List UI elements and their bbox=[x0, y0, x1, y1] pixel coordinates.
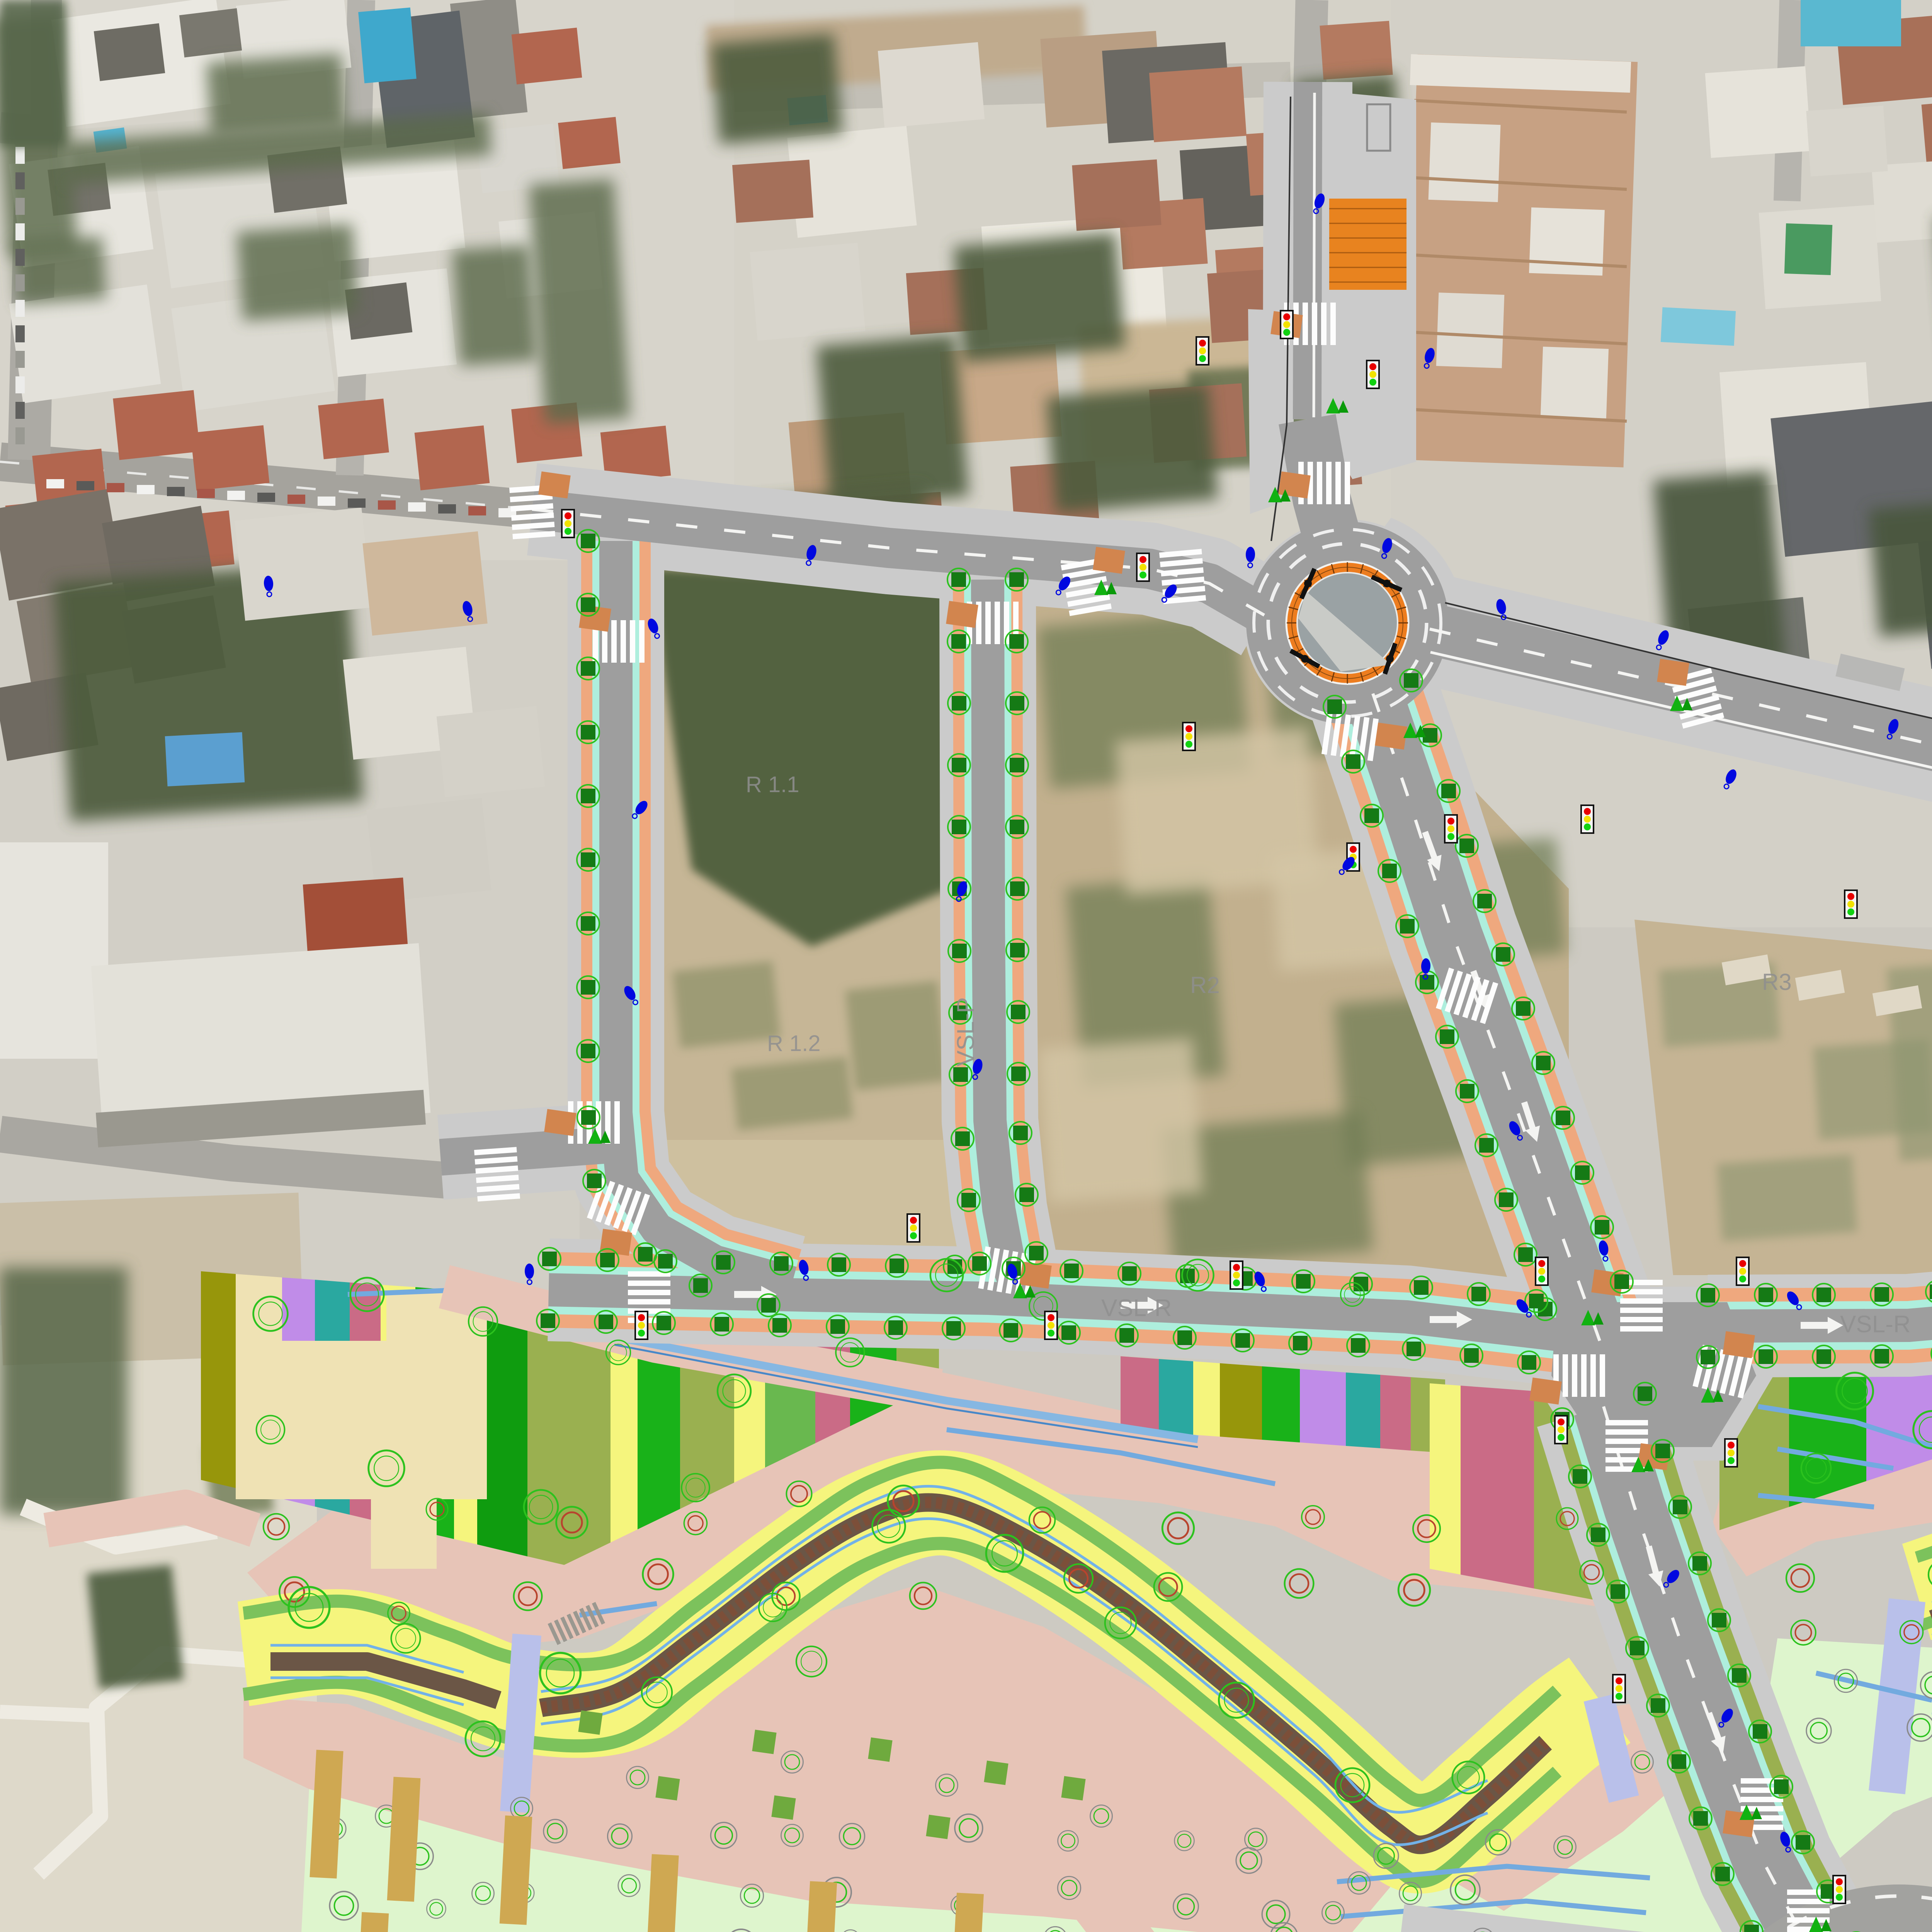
svg-text:R 1.1: R 1.1 bbox=[746, 772, 799, 797]
svg-text:VSL-R: VSL-R bbox=[1840, 1311, 1911, 1338]
svg-text:R 1.2: R 1.2 bbox=[767, 1031, 821, 1056]
svg-text:R3: R3 bbox=[1762, 969, 1792, 995]
svg-text:VSL-P: VSL-P bbox=[952, 997, 979, 1066]
svg-text:VSL-R: VSL-R bbox=[1101, 1295, 1172, 1321]
svg-text:R2: R2 bbox=[1190, 972, 1220, 998]
